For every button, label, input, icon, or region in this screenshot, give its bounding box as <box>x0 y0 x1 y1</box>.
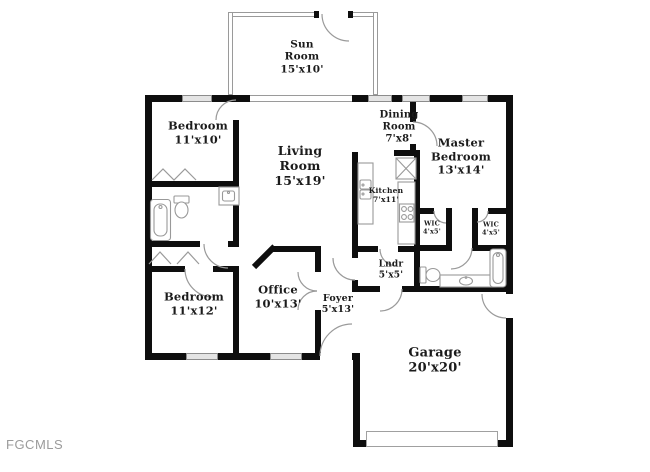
room-label-kitchen: Kitchen 7'x11' <box>369 187 403 205</box>
room-label-wic-2: WIC 4'x5' <box>482 221 500 236</box>
bathtub-icon <box>490 249 506 287</box>
master-bath-door-arc <box>451 248 472 269</box>
bathtub-icon <box>151 200 171 241</box>
garage-door <box>366 431 498 447</box>
plan-symbols <box>0 0 650 472</box>
room-label-bedroom-1: Bedroom 11'x10' <box>168 119 228 146</box>
room-label-dining-room: Dining Room 7'x8' <box>379 109 418 144</box>
sink-vanity-icon <box>219 187 239 205</box>
foyer-laundry-door-arc <box>333 258 355 280</box>
room-label-master-bedroom: Master Bedroom 13'x14' <box>431 137 491 178</box>
watermark: FGCMLS <box>6 437 63 452</box>
sunroom-door-arc <box>322 14 349 41</box>
room-label-laundry: Lndr 5'x5' <box>379 259 404 280</box>
toilet-icon <box>420 267 440 283</box>
laundry-garage-door-arc <box>380 289 402 311</box>
front-door-arc <box>320 324 352 356</box>
room-label-foyer: Foyer 5'x13' <box>322 293 355 315</box>
room-label-living-room: Living Room 15'x19' <box>274 144 325 188</box>
fixtures <box>151 158 507 287</box>
sink-vanity-icon <box>440 275 496 287</box>
room-label-sun-room: Sun Room 15'x10' <box>280 38 323 75</box>
garage-side-door-arc <box>482 294 506 318</box>
bedroom1-closet-bifold <box>152 169 196 180</box>
bedroom1-door-arc <box>216 100 236 120</box>
hall-closet-bifold <box>177 252 199 264</box>
floor-plan: Sun Room 15'x10' Bedroom 11'x10' Living … <box>0 0 650 472</box>
room-label-garage: Garage 20'x20' <box>408 346 461 377</box>
hall-closet-bifold <box>149 252 171 264</box>
toilet-icon <box>174 196 189 218</box>
room-label-bedroom-2: Bedroom 11'x12' <box>164 290 224 317</box>
room-label-wic-1: WIC 4'x5' <box>423 220 441 235</box>
room-label-office: Office 10'x13' <box>254 283 301 310</box>
refrigerator-icon <box>396 158 416 179</box>
bath-door-arc <box>204 244 228 268</box>
